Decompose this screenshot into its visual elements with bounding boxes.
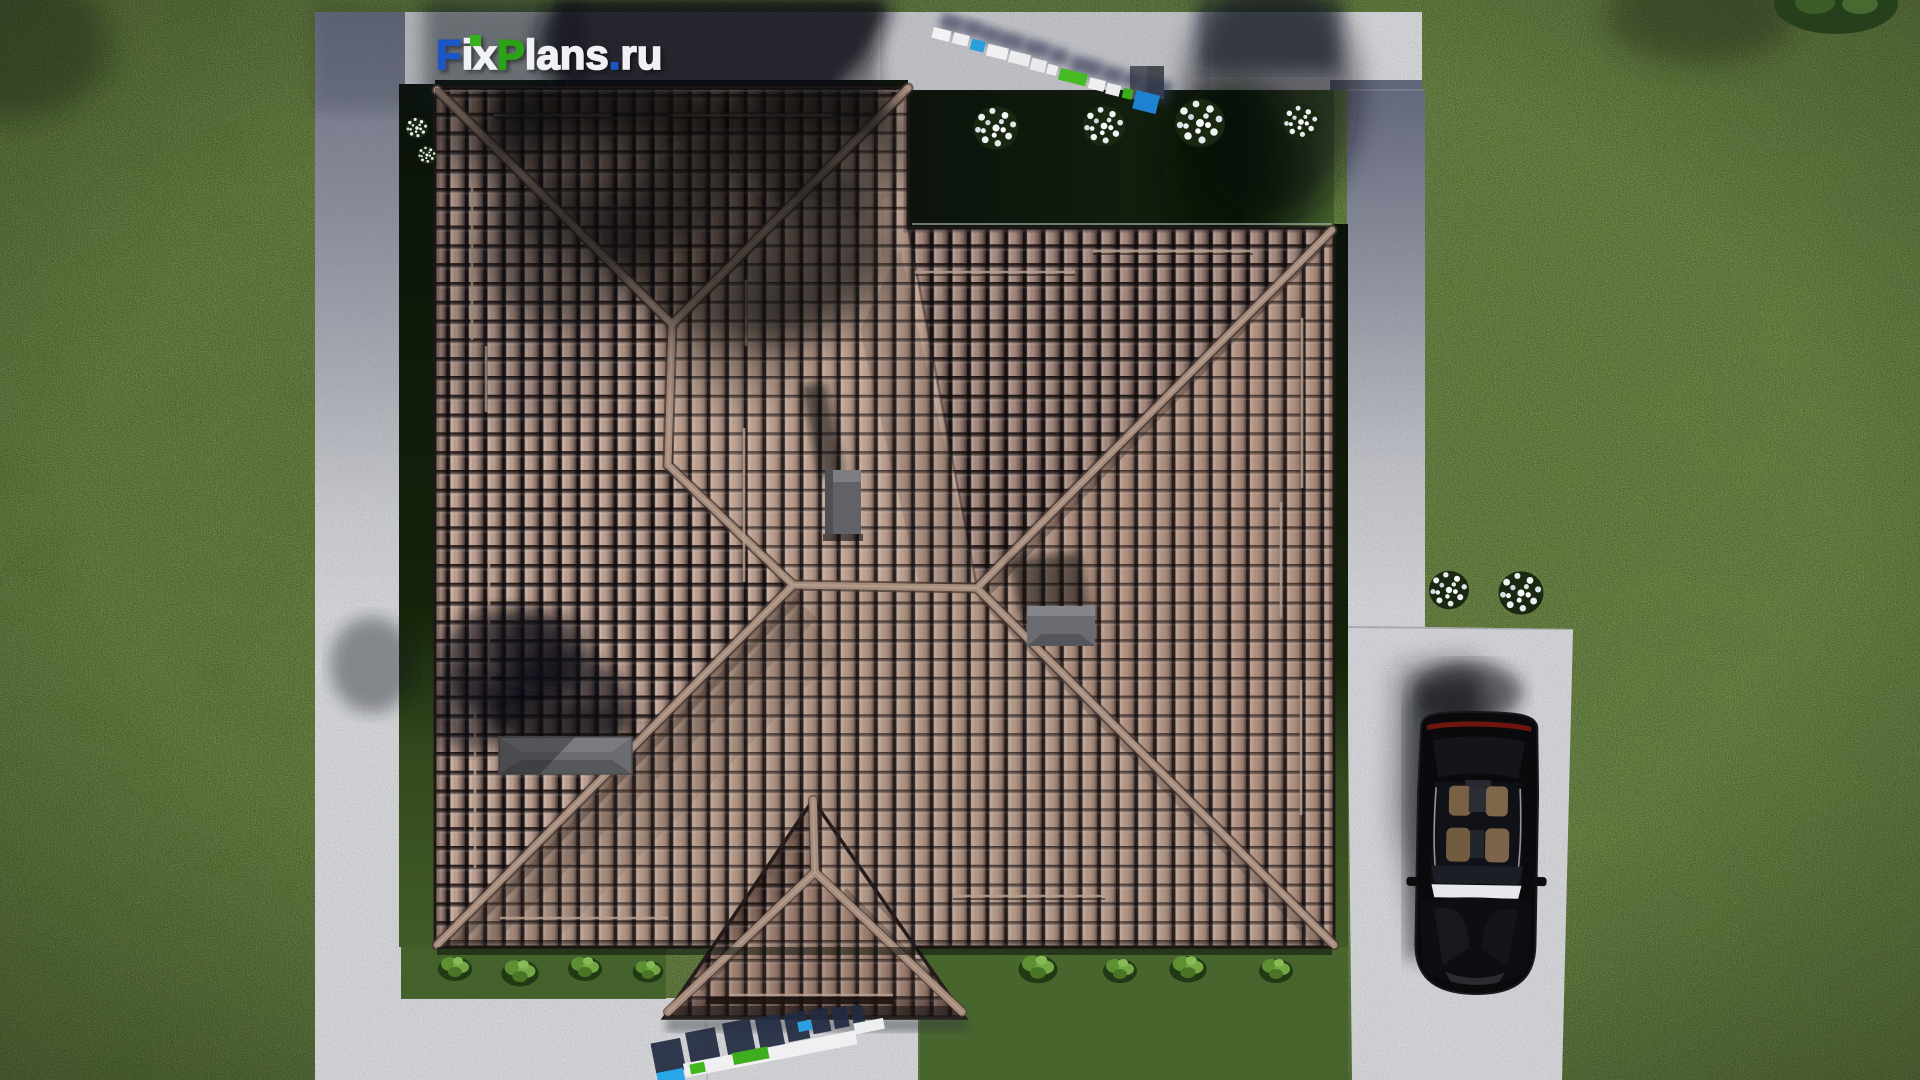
svg-text:FixPlans.ru: FixPlans.ru: [436, 31, 662, 78]
